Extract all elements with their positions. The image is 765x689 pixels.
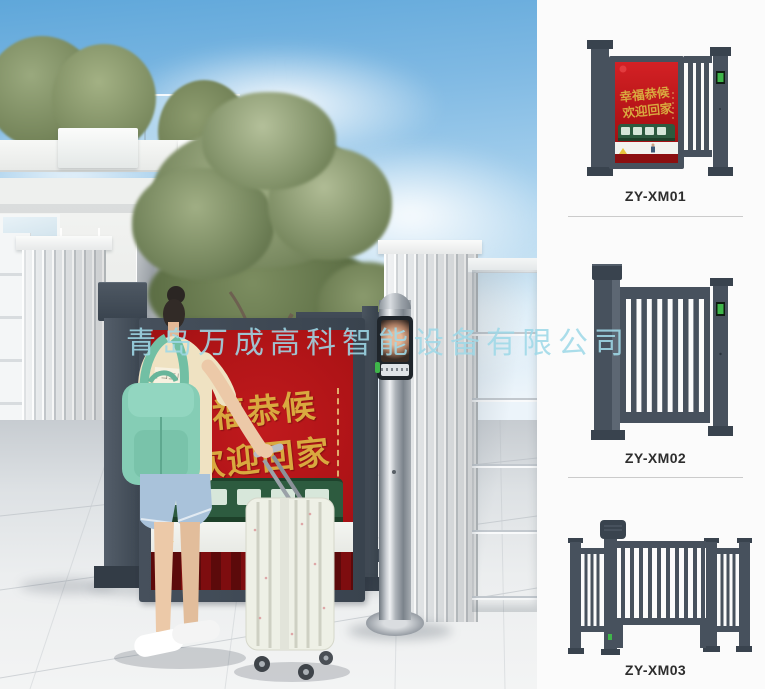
roof-planter [58, 128, 138, 168]
woman-shadow [114, 647, 246, 669]
fence-bars-left [585, 554, 600, 626]
arm [208, 366, 262, 450]
olive-tree-canopy [202, 92, 336, 190]
fence-bars-right [721, 554, 736, 626]
divider [568, 477, 743, 478]
gate-bars [621, 548, 705, 618]
product-label-zy-xm03: ZY-XM03 [568, 662, 743, 678]
watermark-text: 青岛万成高科智能设备有限公司 [126, 318, 630, 362]
motor-box [592, 264, 622, 280]
status-light [608, 634, 612, 640]
suitcase-shadow [234, 662, 350, 682]
product-figure-zy-xm03 [568, 518, 752, 655]
page: 幸福恭候 欢迎回家 [0, 0, 765, 689]
product-figure-zy-xm01: 幸福恭候 欢迎回家 [587, 38, 733, 180]
face-terminal-keypad [381, 364, 409, 376]
ribbed-pillar-left-cap [16, 236, 112, 250]
product-label-zy-xm02: ZY-XM02 [568, 450, 743, 466]
hand [259, 444, 273, 458]
divider [568, 216, 743, 217]
status-light [375, 362, 380, 373]
leg [154, 522, 174, 632]
ribbed-pillar-right-cap [378, 240, 482, 254]
gate-bars [631, 299, 699, 412]
suitcase [246, 456, 334, 680]
leg [180, 522, 200, 624]
pedestal-screw [392, 470, 396, 474]
product-ad-train [618, 124, 675, 141]
product-label-zy-xm01: ZY-XM01 [568, 188, 743, 204]
